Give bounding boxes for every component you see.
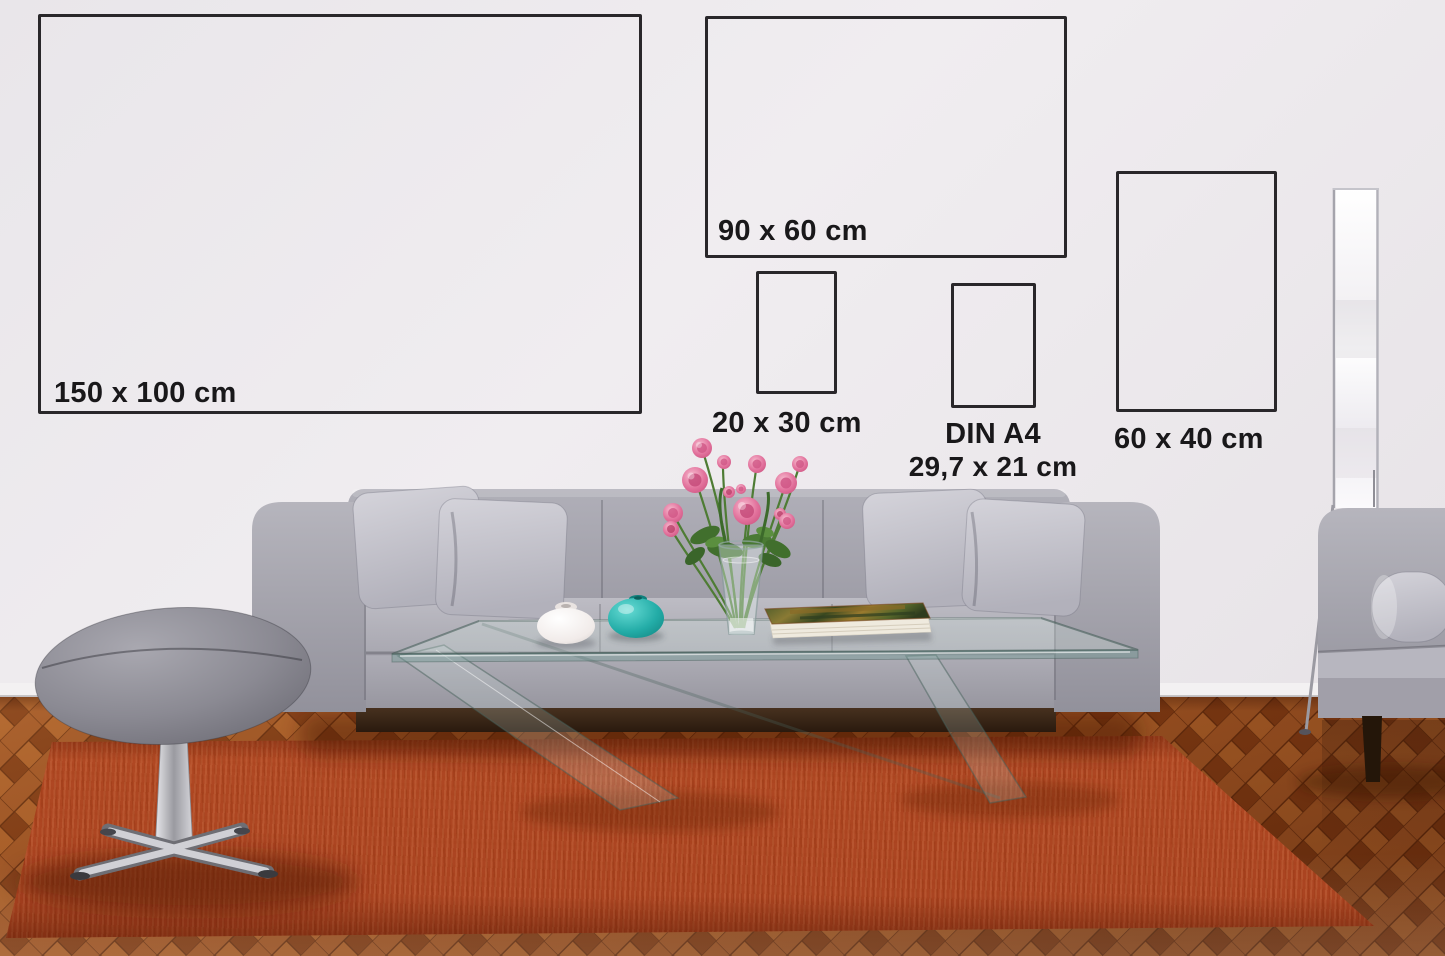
size-label-20x30: 20 x 30 cm [712,408,862,438]
stool-shadow [18,852,358,912]
size-frame-150x100 [38,14,642,414]
size-label-din-a4: DIN A4 29,7 x 21 cm [890,419,1096,482]
living-room-size-guide: 150 x 100 cm 90 x 60 cm 20 x 30 cm DIN A… [0,0,1445,956]
size-frame-din-a4 [951,283,1036,408]
size-frame-20x30 [756,271,837,394]
size-label-60x40: 60 x 40 cm [1114,424,1264,454]
right-sofa [1297,508,1445,850]
book [765,603,932,645]
size-label-din-a4-line2: 29,7 x 21 cm [890,452,1096,481]
size-label-150x100: 150 x 100 cm [54,378,237,408]
size-label-din-a4-line1: DIN A4 [945,418,1041,450]
size-label-90x60: 90 x 60 cm [718,216,868,246]
stool [31,599,316,880]
size-frame-60x40 [1116,171,1277,412]
sofa [252,485,1160,732]
table-top [392,618,1138,654]
